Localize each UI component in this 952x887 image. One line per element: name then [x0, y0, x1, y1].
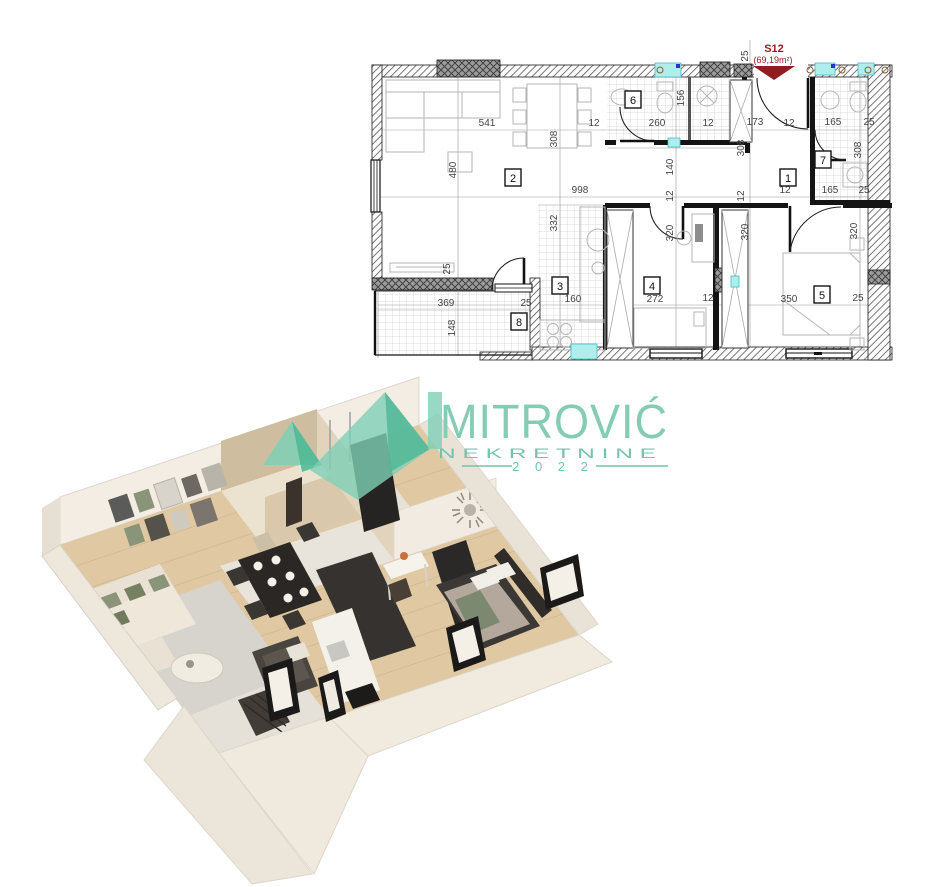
dimension-label: 998	[572, 185, 589, 196]
room-number: 5	[819, 290, 825, 302]
dimension-label: 156	[676, 89, 687, 106]
window-west	[371, 160, 380, 212]
unit-area: (69,19m²)	[753, 55, 792, 65]
floorplan-and-render: S12 (69,19m²) 54112260121731216525253084…	[0, 0, 952, 887]
dimension-label: 12	[702, 118, 714, 129]
room-number: 2	[510, 173, 516, 185]
dimension-label: 12	[665, 190, 676, 202]
dimension-label: 25	[520, 298, 532, 309]
dimension-label: 320	[849, 222, 860, 239]
dimension-label: 173	[747, 117, 764, 128]
room-number: 3	[557, 281, 563, 293]
listing-image: S12 (69,19m²) 54112260121731216525253084…	[0, 0, 952, 887]
room-number: 1	[785, 173, 791, 185]
dimension-label: 12	[783, 118, 795, 129]
dimension-label: 148	[447, 319, 458, 336]
dimension-label: 25	[442, 263, 453, 275]
logo-name: MITROVIĆ	[440, 395, 668, 449]
dimension-label: 369	[438, 298, 455, 309]
dimension-label: 140	[665, 158, 676, 175]
dimension-label: 25	[858, 185, 870, 196]
dimension-label: 320	[665, 224, 676, 241]
dimension-label: 308	[549, 130, 560, 147]
wardrobe-hall	[730, 80, 752, 142]
dimension-label: 25	[863, 117, 875, 128]
window-south-1	[650, 349, 702, 358]
dimension-label: 25	[740, 50, 751, 62]
dimension-label: 350	[781, 294, 798, 305]
room-number: 8	[516, 317, 522, 329]
logo-year: 2 0 2 2	[512, 459, 594, 474]
room-number: 4	[649, 281, 655, 293]
coffee-table-3d	[171, 653, 223, 683]
dimension-label: 272	[647, 294, 664, 305]
room5-door	[790, 207, 841, 252]
unit-id: S12	[764, 43, 784, 55]
window-south-2	[786, 349, 852, 358]
dimension-label: 480	[448, 161, 459, 178]
room-number: 6	[630, 95, 636, 107]
dimension-label: 320	[740, 223, 751, 240]
dimension-label: 160	[565, 294, 582, 305]
dimension-label: 332	[549, 214, 560, 231]
dimension-label: 165	[825, 117, 842, 128]
dimension-label: 12	[588, 118, 600, 129]
wardrobe-room4	[607, 210, 633, 348]
dimension-label: 165	[822, 185, 839, 196]
dimension-label: 12	[702, 293, 714, 304]
doorway-dark-3d	[286, 477, 302, 527]
dimension-label: 308	[853, 141, 864, 158]
dimension-label: 25	[852, 293, 864, 304]
floorplan: S12 (69,19m²) 54112260121731216525253084…	[371, 40, 892, 360]
dimension-label: 541	[479, 118, 496, 129]
dimension-label: 308	[736, 139, 747, 156]
room-number: 7	[820, 155, 826, 167]
dimension-label: 260	[649, 118, 666, 129]
dimension-label: 12	[736, 190, 747, 202]
